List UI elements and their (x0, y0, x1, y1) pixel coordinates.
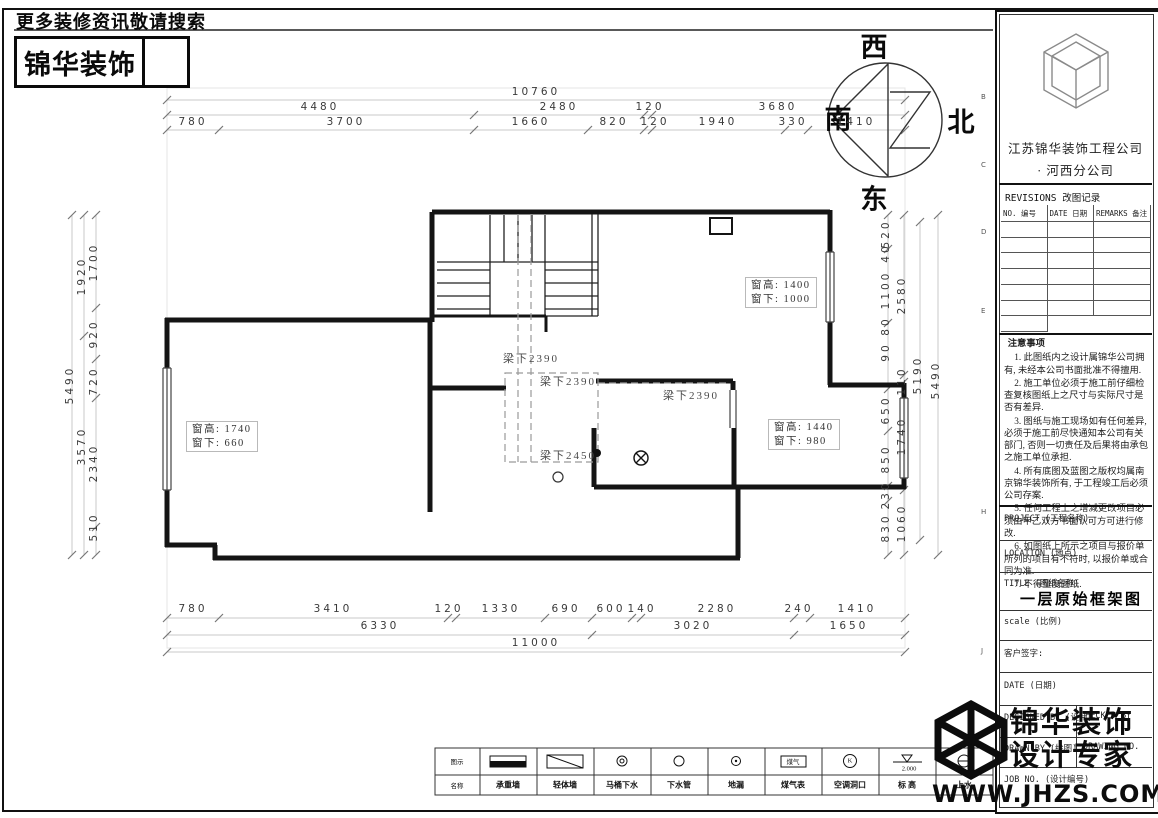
dim-bottom-seg: 600 (596, 603, 625, 615)
dim-top-seg: 2480 (540, 101, 579, 113)
dim-top-seg: 3700 (327, 116, 366, 128)
revisions-title: REVISIONS 改图记录 (1005, 190, 1100, 204)
dim-bottom-seg: 140 (627, 603, 656, 615)
dim-bottom-total: 11000 (512, 637, 560, 649)
notes-title: 注意事项 (1004, 338, 1150, 350)
dim-bottom-seg: 780 (178, 603, 207, 615)
dim-right-seg: 1740 (896, 417, 908, 456)
search-tagline: 更多装修资讯敬请搜索 (16, 8, 206, 34)
dim-right-seg: 830 (880, 513, 892, 542)
window-label-box: 窗高: 1400 窗下: 1000 (745, 277, 817, 308)
watermark-cube-icon (932, 698, 1010, 782)
dim-right-seg: 110 (896, 366, 908, 395)
rev-col-remarks: REMARKS 备注 (1094, 205, 1151, 222)
location-label: LOCATION (地点) (1004, 547, 1077, 559)
divider (999, 640, 1152, 641)
watermark-url: WWW.JHZS.COM (932, 780, 1158, 808)
dim-top-seg: 1660 (512, 116, 551, 128)
client-sign-label: 客户签字: (1004, 647, 1043, 659)
rev-col-date: DATE 日期 (1048, 205, 1095, 222)
beam-label: 梁下2390 (503, 350, 559, 366)
dim-top-seg: 1410 (837, 116, 876, 128)
compass-north-label: 北 (948, 101, 975, 140)
dim-right-seg: 1100 (880, 271, 892, 310)
dim-left-total: 5490 (64, 366, 76, 405)
dim-bottom-seg: 2280 (698, 603, 737, 615)
dim-left-seg: 510 (88, 512, 100, 541)
frame-ref: D (981, 228, 986, 236)
elevation-symbol-text: 2.000 (902, 766, 917, 773)
dim-bottom-seg: 1410 (838, 603, 877, 615)
dim-top-seg: 120 (640, 116, 669, 128)
duct-box (710, 218, 732, 234)
frame-ref: B (981, 93, 986, 101)
dim-bottom-seg: 120 (434, 603, 463, 615)
dimension-ticks (68, 96, 942, 656)
divider (999, 672, 1152, 673)
note-item: 2. 施工单位必须于施工前仔细检查复核图纸上之尺寸与实际尺寸是否有差异. (1004, 378, 1150, 415)
elevation-symbol (893, 755, 922, 762)
dim-right-seg: 80 (880, 316, 892, 335)
dim-bottom-seg: 3410 (314, 603, 353, 615)
watermark-line1: 锦华装饰 (1010, 707, 1134, 740)
scale-label: scale (比例) (1004, 615, 1062, 627)
dim-top-seg: 120 (635, 101, 664, 113)
ac-hole-symbol-text: K (848, 758, 853, 765)
dim-left-seg: 3570 (76, 427, 88, 466)
dim-right-seg: 90 (880, 342, 892, 361)
dim-left-seg: 2340 (88, 444, 100, 483)
dim-bottom-seg: 3020 (674, 620, 713, 632)
legend-label: 轻体墙 (553, 780, 577, 791)
legend-label: 煤气表 (781, 780, 805, 791)
window-height: 窗高: 1740 (192, 423, 252, 437)
legend-label: 马桶下水 (606, 780, 638, 791)
dim-right-seg: 230 (880, 480, 892, 509)
legend-label: 承重墙 (496, 780, 520, 791)
legend-label: 标 高 (898, 780, 916, 791)
window-sill: 窗下: 980 (774, 435, 834, 449)
dim-right-seg: 40 (880, 243, 892, 262)
divider (999, 505, 1152, 507)
drawing-title: 一层原始框架图 (1020, 588, 1143, 609)
legend-label: 地漏 (728, 780, 744, 791)
guide-rect (167, 88, 905, 648)
legend-label: 下水管 (667, 780, 691, 791)
beam-dashed-lines (505, 214, 730, 462)
note-item: 3. 图纸与施工现场如有任何差异, 必须于施工前尽快通知本公司有关部门, 否则一… (1004, 416, 1150, 465)
watermark-line2: 设计专家 (1010, 740, 1134, 773)
project-label: PROJECT (工程名称) (1004, 512, 1089, 524)
dim-top-seg: 330 (778, 116, 807, 128)
company-name: 江苏锦华装饰工程公司 (999, 138, 1152, 157)
dim-left-seg: 1920 (76, 257, 88, 296)
gas-meter-symbol-text: 煤气 (787, 756, 800, 766)
light-wall-symbol (547, 755, 583, 768)
dim-bottom-seg: 1650 (830, 620, 869, 632)
brand-search-box: 锦华装饰 (14, 36, 190, 88)
dim-top-total: 10760 (512, 86, 560, 98)
dim-right-total: 5490 (930, 361, 942, 400)
divider (999, 333, 1152, 335)
window-sill: 窗下: 1000 (751, 293, 811, 307)
dim-bottom-seg: 690 (551, 603, 580, 615)
legend-name-header: 名称 (451, 780, 464, 790)
logo-divider (142, 39, 145, 85)
window-height: 窗高: 1400 (751, 279, 811, 293)
note-item: 1. 此图纸内之设计属锦华公司拥有, 未经本公司书面批准不得擅用. (1004, 352, 1150, 377)
window-sill: 窗下: 660 (192, 437, 252, 451)
dim-right-seg: 5190 (912, 356, 924, 395)
dim-top-seg: 1940 (699, 116, 738, 128)
frame-ref: E (981, 307, 985, 315)
beam-label: 梁下2390 (663, 387, 719, 403)
floor-drain-symbol (732, 757, 741, 766)
dim-top-seg: 820 (599, 116, 628, 128)
stair-lower-wall (434, 316, 546, 332)
beam-label: 梁下2450 (540, 447, 596, 463)
revisions-table: NO. 编号 DATE 日期 REMARKS 备注 (1001, 205, 1151, 332)
divider (999, 183, 1152, 185)
dim-left-seg: 1700 (88, 243, 100, 282)
branch-name: · 河西分公司 (999, 160, 1152, 179)
watermark: 锦华装饰 设计专家 WWW.JHZS.COM (932, 698, 1158, 808)
dim-top-seg: 4480 (301, 101, 340, 113)
dim-right-seg: 850 (880, 444, 892, 473)
date-label: DATE (日期) (1004, 679, 1057, 691)
dim-left-seg: 720 (88, 366, 100, 395)
interior-walls (430, 322, 738, 512)
bearing-wall-symbol (490, 756, 526, 767)
brand-logo-text: 锦华装饰 (17, 43, 142, 82)
dim-right-seg: 2580 (896, 276, 908, 315)
dimension-lines (72, 100, 938, 652)
dim-right-seg: 650 (880, 395, 892, 424)
dim-bottom-seg: 1330 (482, 603, 521, 615)
divider (999, 610, 1152, 611)
company-logo-cube-icon (1040, 30, 1112, 114)
divider (999, 540, 1152, 541)
legend-symbol-header: 图示 (451, 756, 464, 766)
note-item: 4. 所有底图及蓝图之版权均属南京锦华装饰所有, 于工程竣工后必须公司存案. (1004, 466, 1150, 503)
dim-right-seg: 1060 (896, 504, 908, 543)
dim-top-seg: 780 (178, 116, 207, 128)
legend-label: 空调洞口 (834, 780, 866, 791)
beam-label: 梁下2390 (540, 373, 596, 389)
drain-pipe-symbol (674, 756, 684, 766)
rev-col-no: NO. 编号 (1001, 205, 1048, 222)
frame-ref: H (981, 508, 986, 516)
window-label-box: 窗高: 1440 窗下: 980 (768, 419, 840, 450)
dim-left-seg: 920 (88, 319, 100, 348)
compass-west-label: 西 (861, 26, 888, 65)
window-height: 窗高: 1440 (774, 421, 834, 435)
compass-east-label: 东 (861, 178, 888, 217)
divider (999, 572, 1152, 573)
frame-ref: J (981, 647, 983, 655)
window-label-box: 窗高: 1740 窗下: 660 (186, 421, 258, 452)
drawing-sheet: 更多装修资讯敬请搜索 锦华装饰 西 北 东 南 10760 4480 2480 … (0, 0, 1158, 818)
toilet-drain-symbol (617, 756, 627, 766)
dim-top-seg: 3680 (759, 101, 798, 113)
dim-bottom-seg: 6330 (361, 620, 400, 632)
frame-ref: C (981, 161, 986, 169)
dim-bottom-seg: 240 (784, 603, 813, 615)
